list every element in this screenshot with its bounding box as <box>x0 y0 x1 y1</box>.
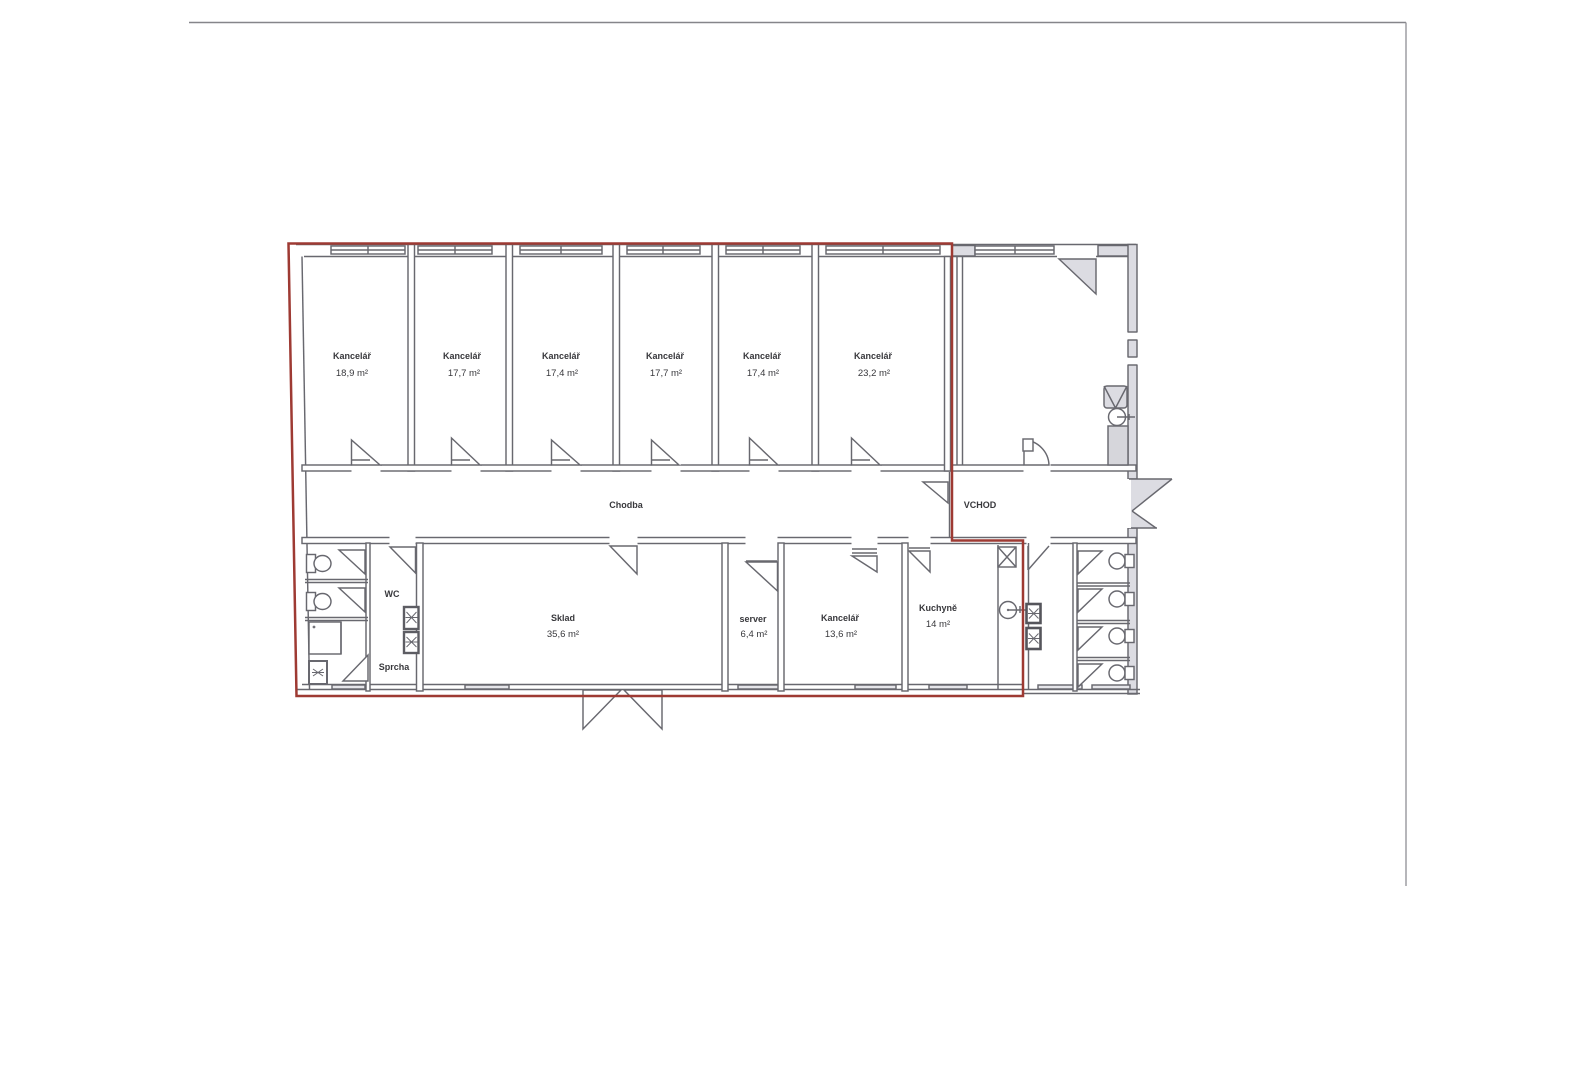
svg-text:17,7 m²: 17,7 m² <box>650 368 682 379</box>
svg-text:18,9 m²: 18,9 m² <box>336 368 368 379</box>
svg-text:Kancelář: Kancelář <box>333 351 372 361</box>
svg-text:Kancelář: Kancelář <box>854 351 893 361</box>
svg-text:Sklad: Sklad <box>551 613 575 623</box>
svg-text:VCHOD: VCHOD <box>964 500 997 510</box>
svg-text:Kancelář: Kancelář <box>743 351 782 361</box>
svg-text:17,4 m²: 17,4 m² <box>747 368 779 379</box>
svg-text:Chodba: Chodba <box>609 500 643 510</box>
svg-text:Kancelář: Kancelář <box>646 351 685 361</box>
svg-text:6,4 m²: 6,4 m² <box>741 629 768 640</box>
svg-text:17,4 m²: 17,4 m² <box>546 368 578 379</box>
svg-text:23,2 m²: 23,2 m² <box>858 368 890 379</box>
svg-text:14 m²: 14 m² <box>926 619 950 630</box>
svg-text:Kancelář: Kancelář <box>443 351 482 361</box>
svg-text:17,7 m²: 17,7 m² <box>448 368 480 379</box>
svg-text:Sprcha: Sprcha <box>379 662 411 672</box>
svg-text:Kancelář: Kancelář <box>542 351 581 361</box>
svg-text:35,6 m²: 35,6 m² <box>547 629 579 640</box>
svg-text:Kuchyně: Kuchyně <box>919 603 957 613</box>
svg-text:13,6 m²: 13,6 m² <box>825 629 857 640</box>
svg-text:server: server <box>739 614 767 624</box>
svg-text:Kancelář: Kancelář <box>821 613 860 623</box>
svg-text:WC: WC <box>385 589 400 599</box>
